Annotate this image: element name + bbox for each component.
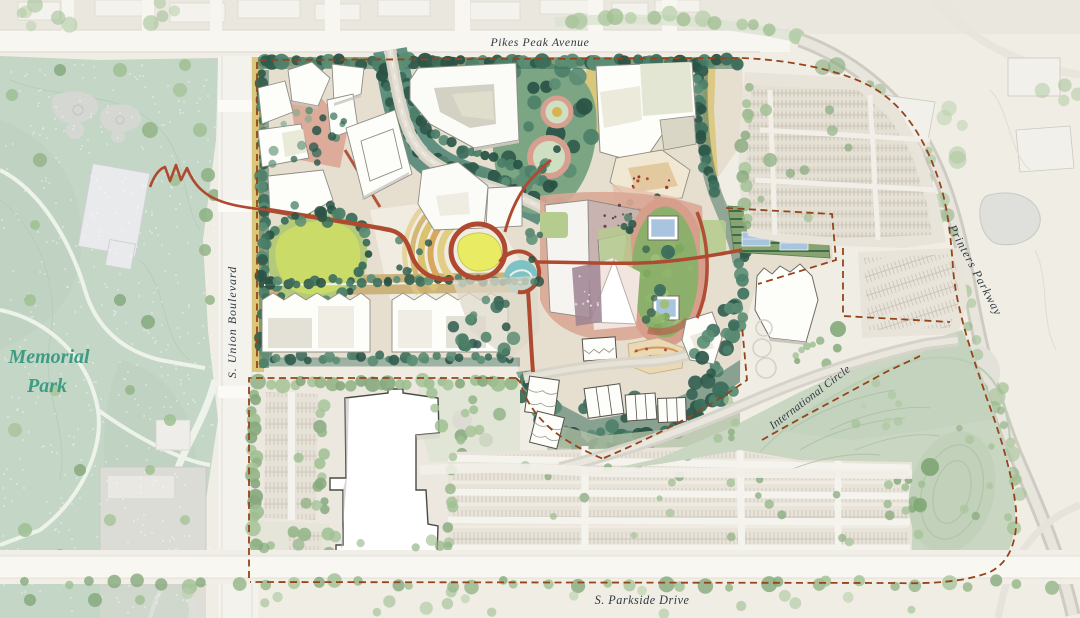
svg-text:Memorial: Memorial: [7, 346, 90, 368]
svg-text:S. Parkside Drive: S. Parkside Drive: [595, 593, 690, 607]
svg-text:Park: Park: [26, 375, 67, 397]
svg-text:Pikes Peak Avenue: Pikes Peak Avenue: [489, 35, 589, 49]
svg-text:S. Union Boulevard: S. Union Boulevard: [225, 266, 239, 379]
